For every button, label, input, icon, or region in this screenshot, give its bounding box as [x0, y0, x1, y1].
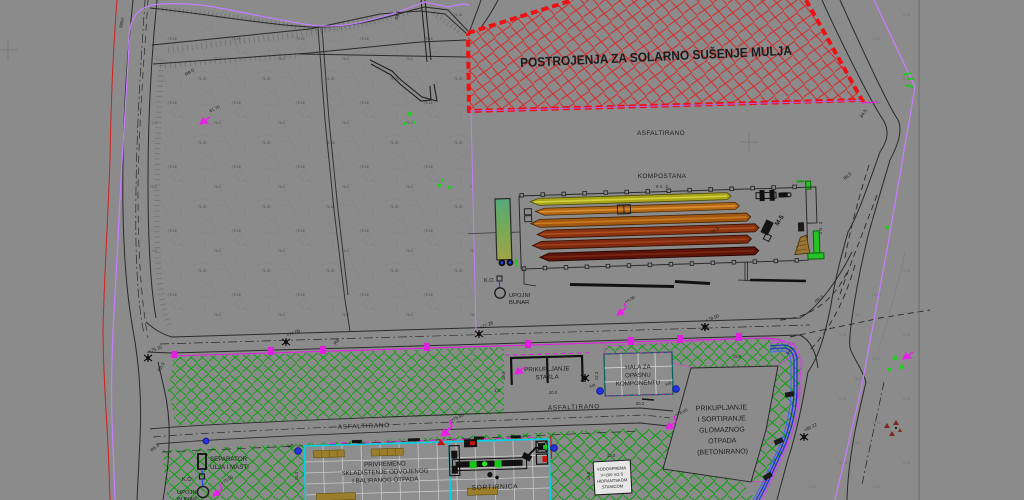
svg-text:10.0: 10.0 — [607, 453, 616, 458]
svg-text:ASFALTIRANO: ASFALTIRANO — [637, 130, 685, 137]
svg-text:KOMPOSTANA: KOMPOSTANA — [638, 173, 687, 180]
svg-text:12.3: 12.3 — [594, 371, 599, 380]
svg-text:KOMPONENTU: KOMPONENTU — [616, 379, 661, 387]
svg-text:GLOMAZNOG: GLOMAZNOG — [699, 426, 745, 434]
svg-text:SORTIRNICA: SORTIRNICA — [472, 483, 519, 491]
svg-text:OTPADA: OTPADA — [708, 438, 737, 446]
svg-text:ULJA I MASTI: ULJA I MASTI — [210, 464, 249, 471]
svg-text:I SORTIRANJE: I SORTIRANJE — [698, 415, 747, 423]
svg-text:HALA ZA: HALA ZA — [625, 364, 652, 372]
svg-text:15.0: 15.0 — [733, 354, 742, 359]
svg-text:16.3: 16.3 — [294, 471, 299, 480]
svg-text:20.0: 20.0 — [549, 390, 558, 395]
svg-text:10.0: 10.0 — [501, 371, 506, 380]
svg-text:K.O.: K.O. — [484, 278, 496, 284]
svg-text:PRIVREMENO: PRIVREMENO — [364, 460, 406, 468]
svg-text:8 4 . 2: 8 4 . 2 — [656, 184, 668, 189]
svg-text:STAKLA: STAKLA — [535, 374, 559, 382]
svg-text:SEPARATOR: SEPARATOR — [210, 456, 248, 463]
svg-text:UPOJNI: UPOJNI — [509, 293, 531, 299]
svg-text:PRIKUPLJANJE: PRIKUPLJANJE — [524, 365, 570, 373]
svg-text:16.8: 16.8 — [586, 471, 591, 480]
svg-text:2 0 . 3: 2 0 . 3 — [818, 221, 823, 234]
svg-text:20.2: 20.2 — [636, 401, 645, 406]
svg-text:1.0: 1.0 — [494, 388, 500, 393]
svg-text:(BETONIRANO): (BETONIRANO) — [697, 448, 748, 456]
svg-text:UPOJNI: UPOJNI — [177, 490, 199, 496]
svg-text:PRIKUPLJANJE: PRIKUPLJANJE — [696, 404, 748, 412]
svg-text:K.O.: K.O. — [182, 477, 194, 483]
svg-text:OPASNU: OPASNU — [625, 372, 651, 380]
svg-text:BUNAR: BUNAR — [509, 300, 529, 306]
